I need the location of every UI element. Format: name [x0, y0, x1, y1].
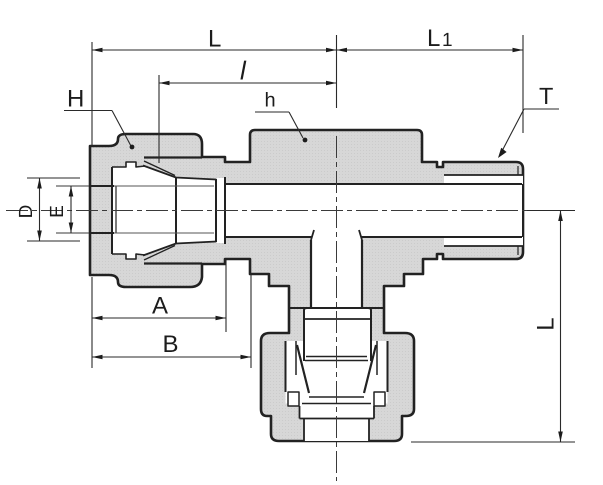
svg-text:H: H [67, 86, 84, 113]
svg-text:A: A [152, 293, 168, 320]
svg-text:L: L [427, 25, 440, 52]
svg-text:L: L [533, 317, 560, 330]
svg-text:T: T [539, 83, 553, 109]
svg-text:1: 1 [442, 30, 453, 51]
svg-text:B: B [163, 331, 179, 358]
svg-text:l: l [240, 56, 247, 86]
svg-text:L: L [208, 26, 221, 53]
svg-text:E: E [47, 205, 68, 218]
svg-text:h: h [265, 90, 276, 112]
svg-text:D: D [16, 205, 37, 219]
